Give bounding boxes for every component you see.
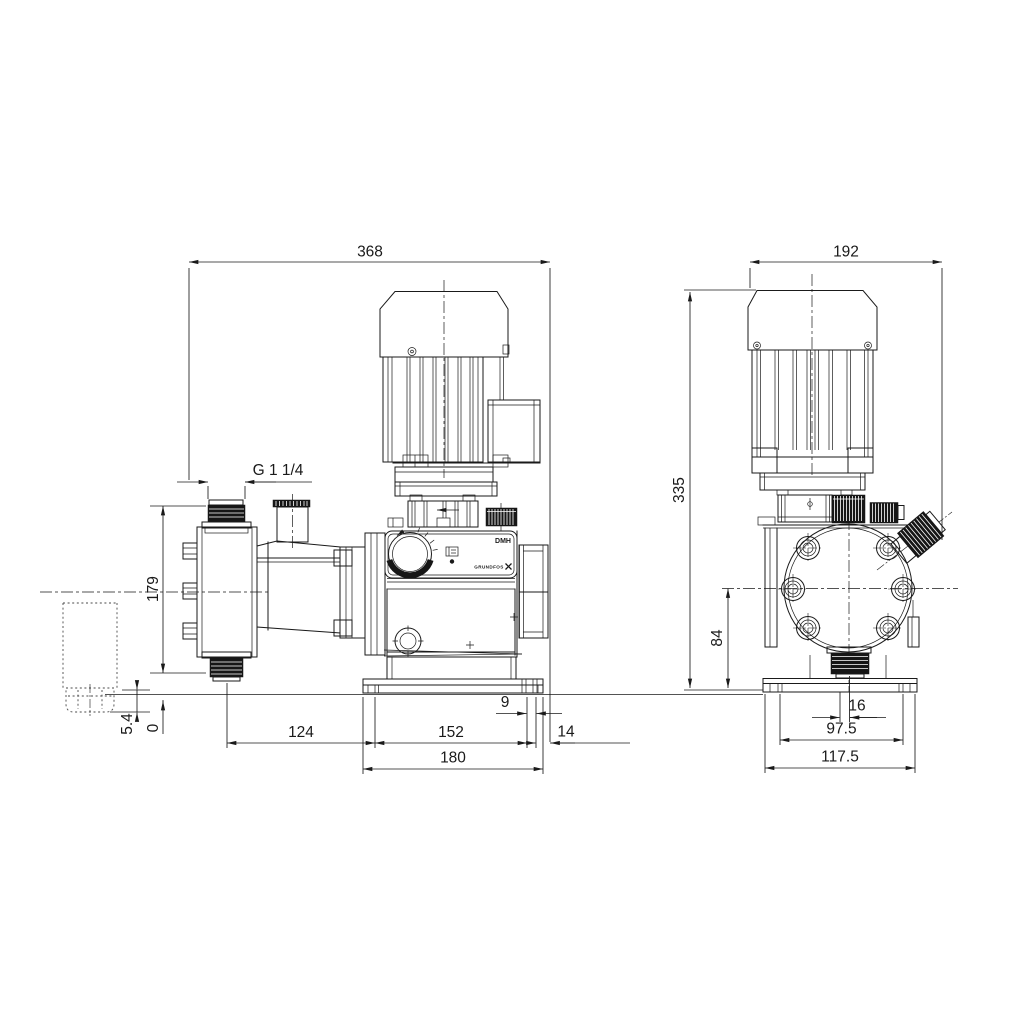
dim-edge-offset-label: 14 [557, 724, 575, 741]
brand-logo-text: GRUNDFOS [474, 565, 504, 570]
discharge-valve-thread [202, 500, 251, 533]
dim-connection-span-label: 179 [145, 576, 162, 602]
dim-front-foot-width-label: 117.5 [821, 749, 859, 766]
indicator-dot-icon [450, 559, 454, 563]
stroke-knob-side [486, 508, 517, 526]
dim-overall-height-label: 335 [671, 477, 688, 503]
dimensional-drawing-page: DMH GRUNDFOS [0, 0, 1024, 1024]
dim-overall-width-label: 368 [357, 244, 383, 261]
dim-foot-width-label: 180 [440, 750, 466, 767]
dim-base-level-label: 0 [145, 723, 162, 732]
dim-thread-label: G 1 1/4 [253, 462, 304, 479]
dim-slot-width-label: 9 [501, 694, 510, 711]
dim-head-center-height-label: 84 [709, 629, 726, 647]
dim-front-width-label: 192 [833, 244, 859, 261]
dim-below-base-label: 5.4 [119, 713, 136, 735]
dim-slot-spacing-label: 152 [438, 724, 464, 741]
dim-front-slot-spacing-label: 97.5 [826, 721, 856, 738]
dim-center-offset-label: 16 [848, 698, 865, 715]
dim-valve-to-slot-label: 124 [288, 724, 314, 741]
pump-dimensional-drawing: DMH GRUNDFOS [0, 0, 1024, 1024]
model-label: DMH [495, 538, 511, 545]
